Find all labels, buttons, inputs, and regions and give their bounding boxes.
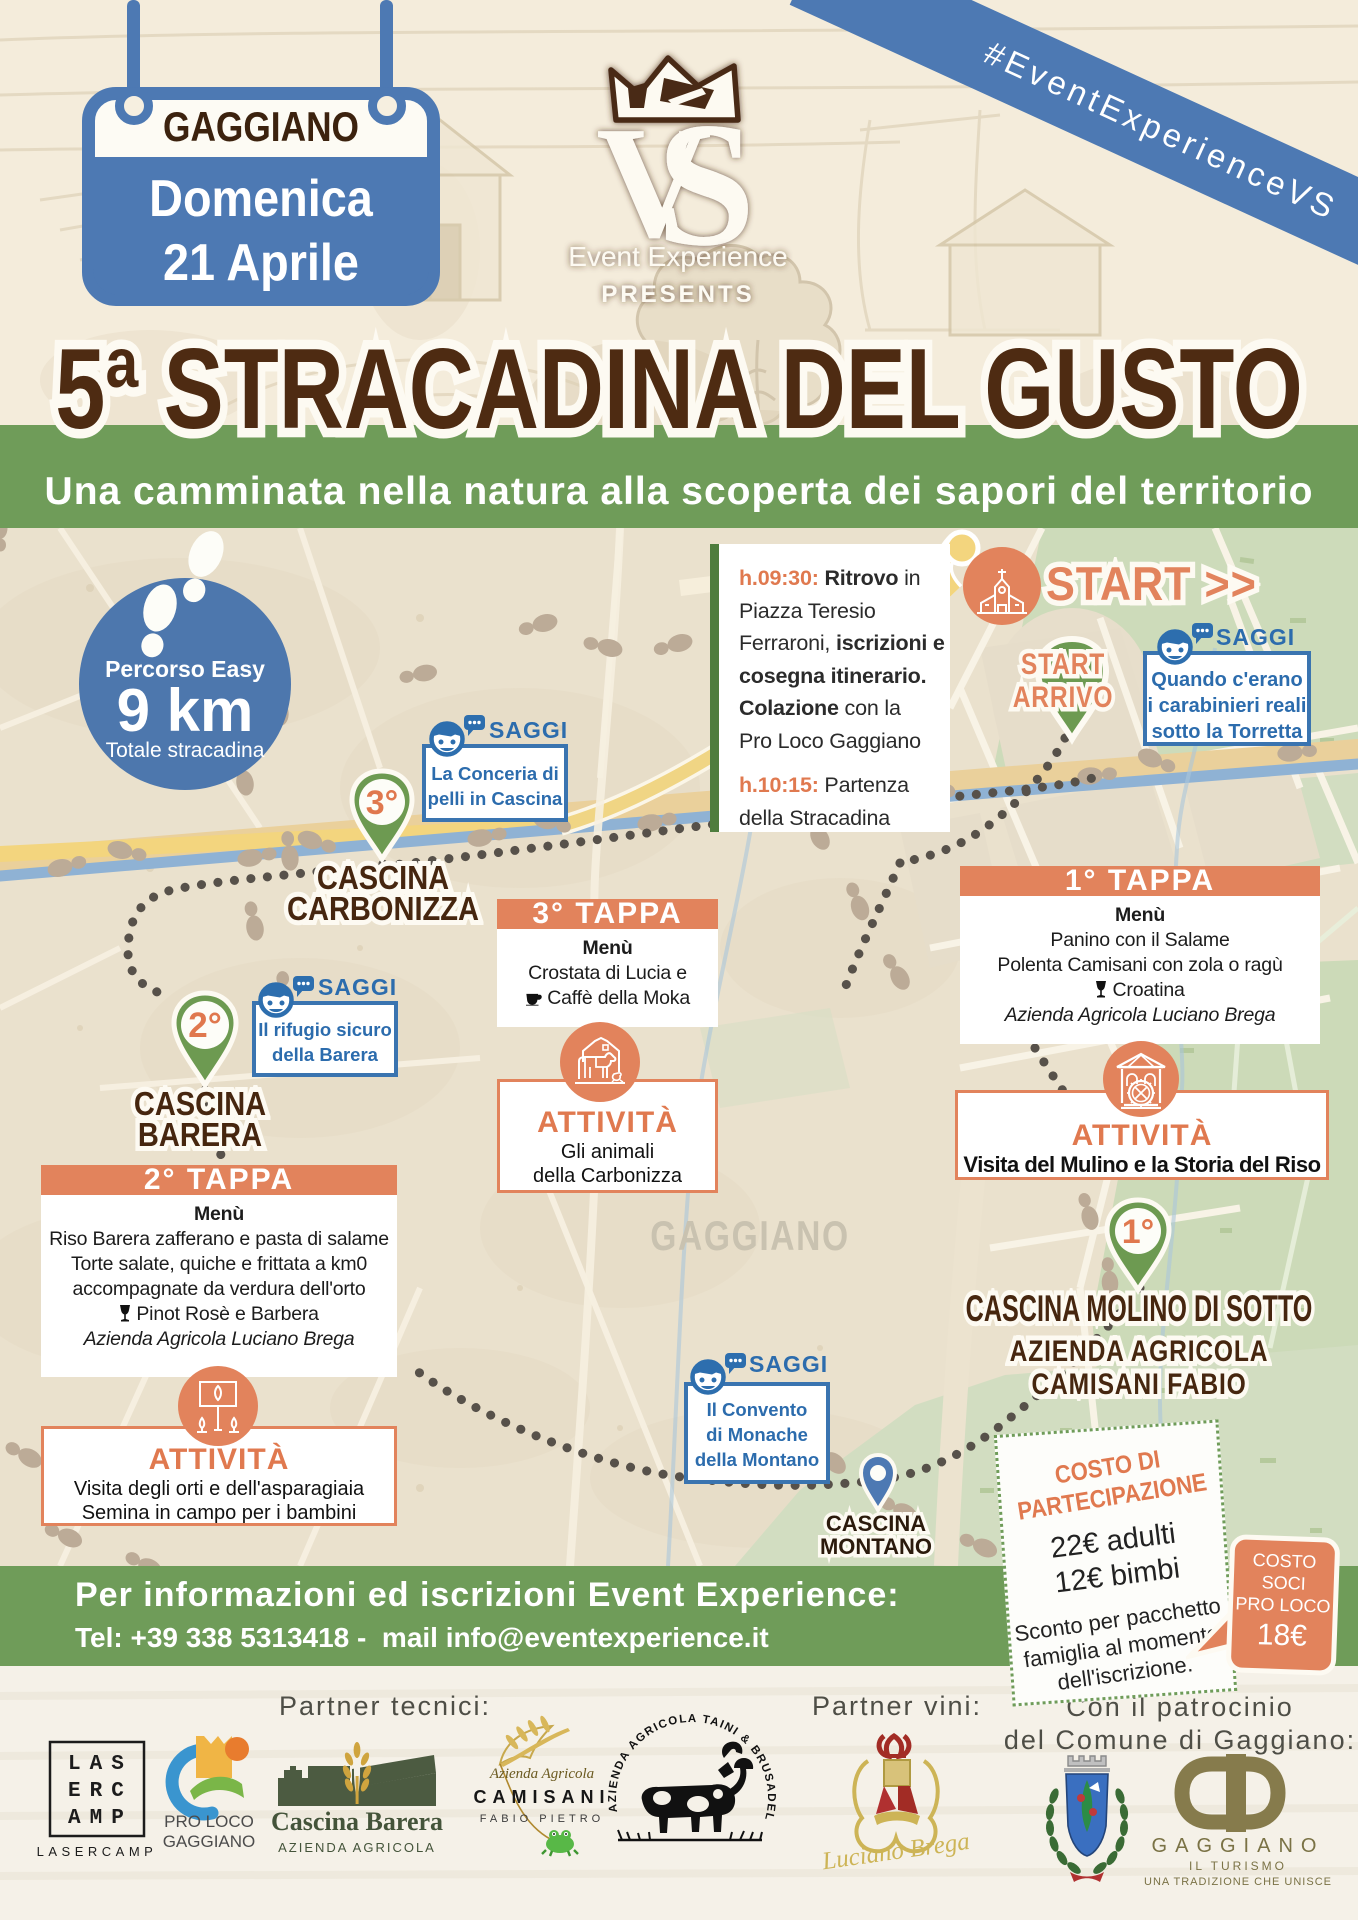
svg-text:Event Experience: Event Experience (568, 241, 787, 272)
svg-text:Cascina Barera: Cascina Barera (271, 1807, 443, 1836)
svg-text:CAMISANI: CAMISANI (474, 1787, 611, 1807)
svg-text:AMP: AMP (68, 1807, 133, 1830)
svg-text:2°: 2° (188, 1006, 221, 1045)
svg-text:LAS: LAS (68, 1753, 133, 1776)
svg-text:ERC: ERC (68, 1780, 133, 1803)
svg-text:GAGGIANO: GAGGIANO (1152, 1835, 1325, 1857)
svg-text:1°: 1° (1122, 1213, 1155, 1251)
svg-text:PRESENTS: PRESENTS (601, 281, 754, 308)
svg-text:UNA TRADIZIONE CHE UNISCE: UNA TRADIZIONE CHE UNISCE (1144, 1876, 1332, 1888)
svg-text:3°: 3° (366, 784, 399, 822)
svg-text:AZIENDA AGRICOLA: AZIENDA AGRICOLA (278, 1840, 436, 1855)
svg-text:FABIO PIETRO: FABIO PIETRO (480, 1813, 604, 1825)
svg-text:IL TURISMO: IL TURISMO (1189, 1859, 1287, 1873)
svg-text:GAGGIANO: GAGGIANO (163, 1832, 256, 1851)
svg-text:LASERCAMP: LASERCAMP (37, 1844, 158, 1859)
svg-text:PRO LOCO: PRO LOCO (164, 1812, 254, 1831)
svg-text:Azienda Agricola: Azienda Agricola (489, 1766, 594, 1782)
